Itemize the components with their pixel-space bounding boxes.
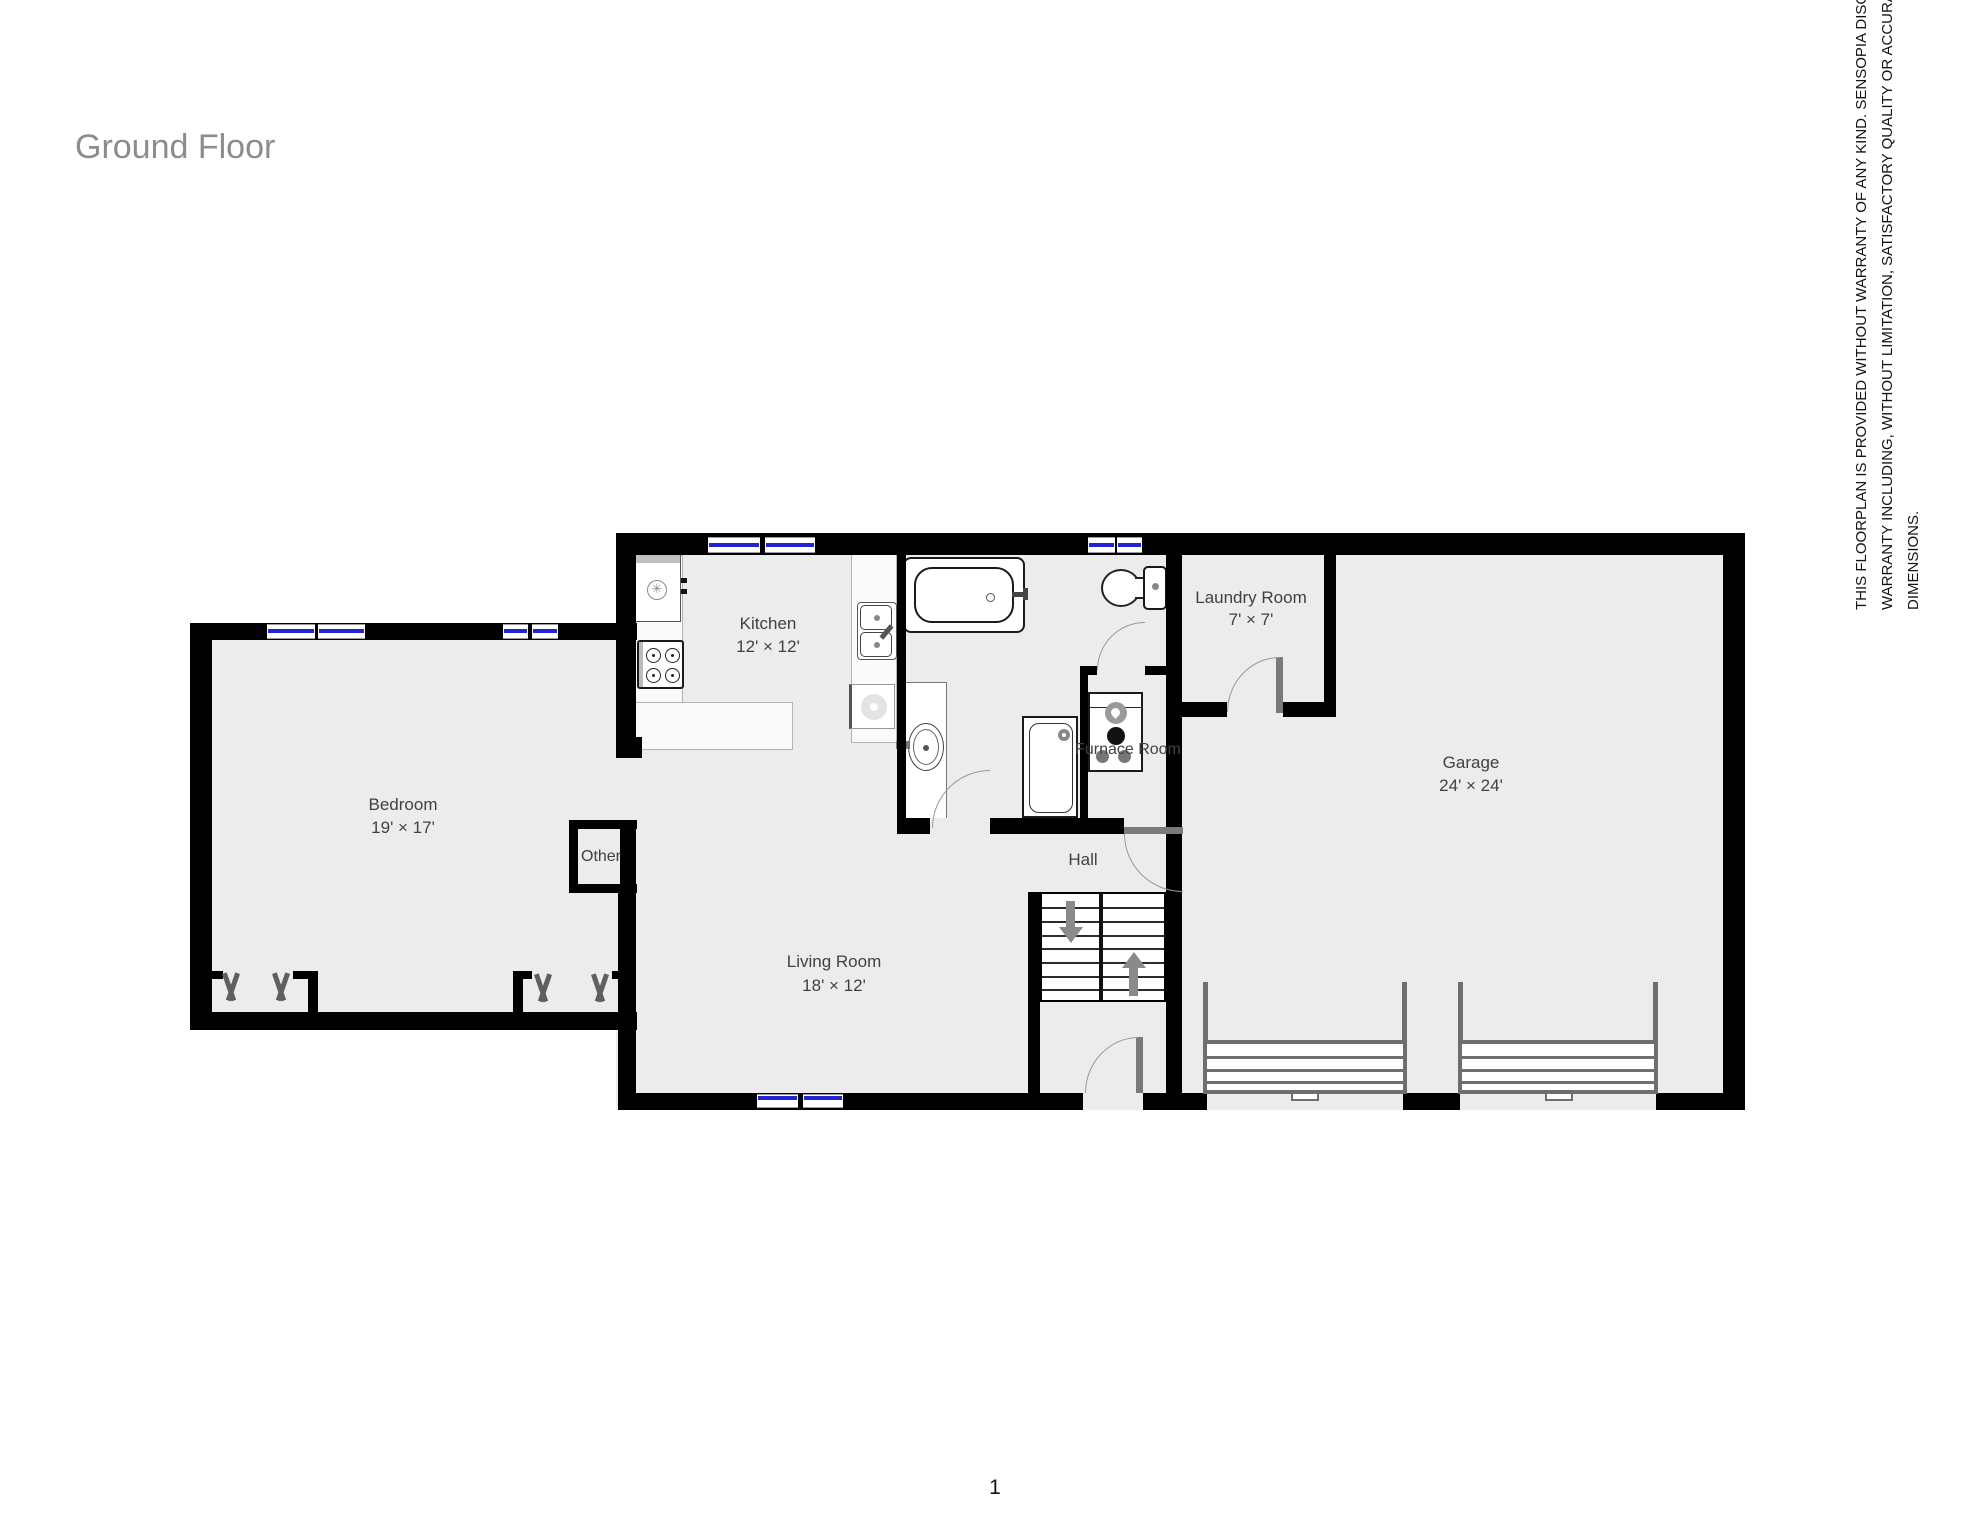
- wall-other-bottom: [569, 884, 637, 893]
- wall-kitchen-bath: [897, 552, 906, 834]
- fridge-handle-icon: [681, 578, 687, 583]
- shower: [1022, 716, 1078, 818]
- hall-garage-door: [1124, 827, 1183, 834]
- wall-garage-left: [1166, 552, 1182, 1093]
- garage-door-handle: [1291, 1092, 1319, 1101]
- kitchen-sink: [857, 602, 897, 660]
- stairs-up-arrow-icon: [1129, 968, 1138, 996]
- stairs-down-arrow-icon: [1066, 901, 1075, 929]
- page-number: 1: [975, 1476, 1015, 1500]
- furnace: [1088, 692, 1143, 772]
- window-icon: [267, 624, 315, 639]
- window-icon: [318, 624, 365, 639]
- refrigerator-icon: ✳: [647, 580, 667, 600]
- stove-burner-icon: [665, 668, 680, 683]
- room-dims-laundry: 7' × 7': [1229, 610, 1274, 630]
- dishwasher: [849, 684, 895, 729]
- wall-closet-stub: [308, 971, 318, 1012]
- disclaimer-line: THIS FLOORPLAN IS PROVIDED WITHOUT WARRA…: [1849, 98, 1875, 610]
- garage-door-icon: [1458, 1040, 1658, 1094]
- wall-closet-right: [620, 820, 636, 893]
- floorplan-page: Ground Floor ✳: [0, 0, 1988, 1536]
- stove: [637, 640, 684, 689]
- wall-furnace-top-a: [1080, 666, 1097, 675]
- closet-rod-icon: [218, 974, 244, 1002]
- room-dims-living-room: 18' × 12': [802, 976, 866, 996]
- window-icon: [757, 1094, 798, 1108]
- stove-burner-icon: [665, 648, 680, 663]
- room-label-bedroom: Bedroom: [369, 795, 438, 815]
- closet-rod-icon: [587, 975, 613, 1003]
- room-label-laundry: Laundry Room: [1195, 588, 1307, 608]
- window-icon: [765, 537, 815, 553]
- wall-furnace-top-b: [1145, 666, 1166, 675]
- wall-kitchen-stub: [616, 737, 642, 758]
- wall-garage-right: [1723, 533, 1745, 1110]
- toilet-tank: [1143, 566, 1167, 610]
- disclaimer-line: DIMENSIONS.: [1901, 98, 1927, 610]
- wall-other-top: [569, 820, 637, 829]
- bathtub-drain-icon: [986, 593, 995, 602]
- room-label-furnace: Furnace Room: [1075, 740, 1181, 760]
- bathtub: [903, 557, 1025, 633]
- vanity-drain-icon: [923, 745, 929, 751]
- refrigerator-top: [634, 554, 680, 563]
- room-label-living-room: Living Room: [787, 952, 882, 972]
- window-icon: [803, 1094, 843, 1108]
- staircase: [1040, 892, 1166, 1002]
- wall-bedroom-left: [190, 623, 212, 1030]
- disclaimer-text: THIS FLOORPLAN IS PROVIDED WITHOUT WARRA…: [1849, 98, 1931, 610]
- stairs-up-arrow-icon: [1122, 952, 1146, 968]
- room-dims-garage: 24' × 24': [1439, 776, 1503, 796]
- window-icon: [708, 537, 760, 553]
- room-label-garage: Garage: [1443, 753, 1500, 773]
- window-icon: [1117, 537, 1142, 553]
- wall-hall-top-b: [990, 818, 1124, 834]
- wall-kitchen-left: [616, 533, 636, 758]
- bathtub-basin: [914, 567, 1014, 623]
- window-icon: [532, 624, 558, 639]
- fridge-handle-icon: [681, 589, 687, 594]
- shower-head-icon: [1058, 729, 1070, 741]
- refrigerator: ✳: [633, 553, 681, 622]
- room-label-kitchen: Kitchen: [740, 614, 797, 634]
- garage-door-icon: [1203, 1040, 1407, 1094]
- disclaimer-line: WARRANTY INCLUDING, WITHOUT LIMITATION, …: [1875, 98, 1901, 610]
- garage-door-handle: [1545, 1092, 1573, 1101]
- room-dims-kitchen: 12' × 12': [736, 637, 800, 657]
- window-icon: [503, 624, 528, 639]
- stove-burner-icon: [646, 648, 661, 663]
- wall-other-left: [569, 820, 578, 893]
- kitchen-counter-bottom: [633, 702, 793, 750]
- bathtub-faucet-icon: [1023, 588, 1028, 600]
- stairs-down-arrow-icon: [1059, 927, 1083, 943]
- stove-edge: [639, 642, 643, 687]
- dishwasher-icon: [861, 694, 887, 720]
- window-icon: [1088, 537, 1115, 553]
- wall-stairs-left: [1028, 892, 1040, 1093]
- room-label-hall: Hall: [1068, 850, 1097, 870]
- wall-closet-stub: [612, 971, 628, 979]
- closet-rod-icon: [530, 975, 556, 1003]
- wall-living-left: [618, 892, 636, 1110]
- wall-laundry-right: [1324, 552, 1336, 717]
- stove-burner-icon: [646, 668, 661, 683]
- page-title: Ground Floor: [75, 128, 275, 167]
- closet-rod-icon: [268, 974, 294, 1002]
- furnace-flame-icon: [1105, 702, 1127, 724]
- wall-bedroom-top: [190, 623, 637, 640]
- wall-hall-top-a: [897, 818, 930, 834]
- room-label-other: Other: [581, 847, 621, 867]
- stairs-divider: [1099, 894, 1103, 1000]
- entry-door-opening: [1083, 1093, 1143, 1110]
- sink-basin: [860, 632, 892, 657]
- wall-bedroom-bottom: [190, 1012, 637, 1030]
- room-dims-bedroom: 19' × 17': [371, 818, 435, 838]
